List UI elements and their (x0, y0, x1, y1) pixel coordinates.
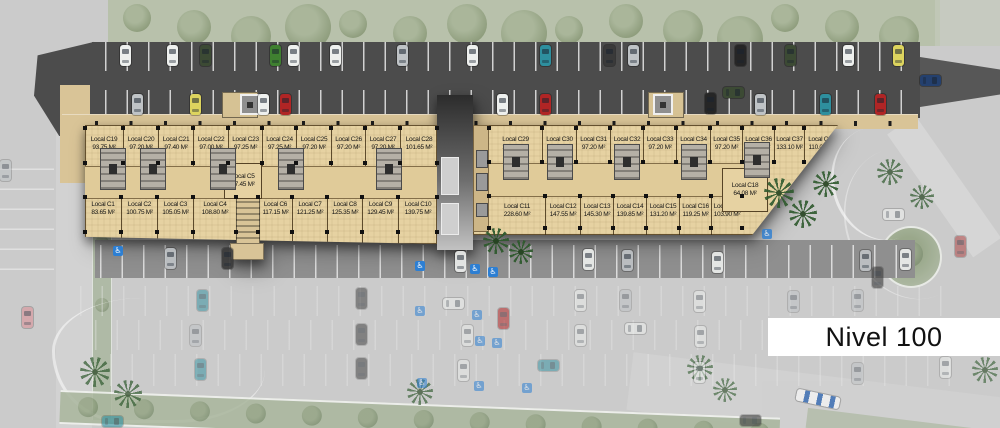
column (325, 230, 329, 234)
column (256, 230, 260, 234)
car-window (167, 252, 174, 257)
column (708, 126, 712, 130)
column (256, 195, 260, 199)
car (165, 248, 176, 269)
local-unit[interactable]: Local C3597.20 M² (710, 125, 742, 163)
column (772, 126, 776, 130)
car-window (464, 340, 471, 343)
car-window (707, 108, 714, 111)
car (498, 308, 509, 329)
car-window (197, 363, 204, 368)
accessible-parking-icon: ♿ (113, 246, 123, 256)
restroom-core (210, 148, 236, 190)
column (398, 126, 402, 130)
column (487, 194, 491, 198)
car-window (577, 305, 584, 308)
column (191, 230, 195, 234)
local-unit[interactable]: Local C3197.20 M² (576, 125, 610, 163)
car-window (854, 294, 861, 299)
car (575, 290, 586, 311)
car (694, 291, 705, 312)
car-window (957, 240, 964, 245)
car-window (282, 109, 289, 112)
column (802, 126, 806, 130)
local-unit[interactable]: Local C12147.55 M² (545, 196, 580, 235)
bush-icon (693, 420, 714, 428)
main-entrance-atrium (437, 95, 473, 250)
bush-icon (357, 407, 378, 428)
unit-name: Local C1 (91, 201, 114, 208)
car-window (757, 98, 764, 103)
car-window (199, 305, 206, 308)
unit-area: 133.10 M² (776, 144, 803, 151)
column (290, 195, 294, 199)
local-unit[interactable]: Local C8125.35 M² (327, 198, 362, 244)
car (785, 45, 796, 66)
unit-name: Local C27 (370, 136, 397, 143)
column (325, 195, 329, 199)
car-window (707, 97, 714, 102)
car-window (282, 98, 289, 103)
unit-area: 228.60 M² (504, 211, 531, 218)
escalator-icon (441, 157, 459, 195)
local-unit[interactable]: Local C15131.20 M² (646, 196, 679, 235)
accessible-parking-icon: ♿ (415, 306, 425, 316)
car-window (24, 311, 31, 316)
car-window (585, 253, 592, 258)
accessible-parking-icon: ♿ (415, 261, 425, 271)
unit-name: Local C16 (682, 203, 709, 210)
column (155, 230, 159, 234)
car (102, 416, 123, 427)
car-window (290, 49, 297, 54)
car (625, 323, 646, 334)
column (363, 126, 367, 130)
car-window (399, 49, 406, 54)
car-window (854, 367, 861, 372)
car-window (550, 362, 555, 369)
car-window (272, 60, 279, 63)
car-window (630, 49, 637, 54)
column (802, 160, 806, 164)
unit-area: 97.20 M² (337, 144, 360, 151)
column (156, 161, 160, 165)
column (260, 126, 264, 130)
unit-area: 105.05 M² (162, 209, 189, 216)
car (167, 45, 178, 66)
unit-name: Local C21 (163, 136, 190, 143)
unit-area: 97.40 M² (164, 144, 187, 151)
column (674, 126, 678, 130)
column (543, 226, 547, 230)
restroom-core (278, 148, 304, 190)
car (705, 93, 716, 114)
column (677, 226, 681, 230)
parking-row-faded (110, 354, 955, 386)
column (396, 230, 400, 234)
escalator-icon (441, 203, 459, 235)
column (611, 226, 615, 230)
column (83, 126, 87, 130)
car-window (542, 60, 549, 63)
unit-area: 101.65 M² (406, 144, 433, 151)
car-window (199, 294, 206, 299)
column (574, 126, 578, 130)
column (396, 195, 400, 199)
car-window (358, 362, 365, 367)
car-window (577, 294, 584, 299)
car-window (499, 109, 506, 112)
restroom-core (547, 144, 573, 180)
car-window (757, 109, 764, 112)
column (155, 195, 159, 199)
column (740, 194, 744, 198)
column (608, 126, 612, 130)
car-window (854, 378, 861, 381)
tree-icon (339, 10, 367, 38)
car-window (500, 312, 507, 317)
car-window (192, 109, 199, 112)
car-window (24, 322, 31, 325)
unit-area: 139.75 M² (405, 209, 432, 216)
car (462, 325, 473, 346)
car (843, 45, 854, 66)
palm-tree-icon (114, 380, 142, 408)
unit-area: 110.05 M² (808, 144, 834, 151)
restroom-core (100, 148, 126, 190)
bush-icon (525, 414, 546, 428)
unit-name: Local C6 (264, 201, 287, 208)
car (940, 357, 951, 378)
bush-icon (246, 403, 267, 424)
unit-name: Local C29 (502, 136, 529, 143)
car (222, 248, 233, 269)
local-unit[interactable]: Local C28101.65 M² (400, 125, 437, 166)
car (820, 94, 831, 115)
column (226, 161, 230, 165)
site-plan-canvas: Local C1993.75 M²Local C2097.20 M²Local … (0, 0, 1000, 428)
car-window (542, 49, 549, 54)
column (83, 230, 87, 234)
car (200, 45, 211, 66)
column (398, 161, 402, 165)
car (22, 307, 33, 328)
car (540, 45, 551, 66)
car (356, 358, 367, 379)
car-window (697, 341, 704, 344)
palm-tree-icon (713, 378, 737, 402)
car (852, 290, 863, 311)
car-window (696, 306, 703, 309)
car (900, 249, 911, 270)
car-window (957, 251, 964, 254)
local-unit[interactable]: Local C3105.05 M² (157, 198, 193, 244)
unit-name: Local C35 (713, 136, 740, 143)
column (191, 161, 195, 165)
local-unit[interactable]: Local C37133.10 M² (774, 125, 804, 163)
accessible-parking-icon: ♿ (488, 267, 498, 277)
column (294, 126, 298, 130)
car-window (624, 265, 631, 268)
column (543, 194, 547, 198)
palm-tree-icon (483, 228, 509, 254)
unit-area: 97.20 M² (715, 144, 738, 151)
local-unit[interactable]: Local C13145.30 M² (580, 196, 613, 235)
car (280, 94, 291, 115)
unit-name: Local C20 (128, 136, 155, 143)
column (641, 126, 645, 130)
car-window (895, 49, 902, 54)
car-window (134, 109, 141, 112)
car-window (499, 98, 506, 103)
car (723, 87, 744, 98)
accessible-parking-icon: ♿ (762, 229, 772, 239)
car (622, 250, 633, 271)
unit-name: Local C13 (584, 203, 611, 210)
skylight-icon (240, 94, 260, 115)
car (467, 45, 478, 66)
unit-name: Local C34 (680, 136, 707, 143)
car-window (752, 417, 757, 424)
car-window (460, 375, 467, 378)
car-window (114, 418, 119, 425)
car (538, 360, 559, 371)
car (120, 45, 131, 66)
car (920, 75, 941, 86)
car-window (577, 329, 584, 334)
car (458, 360, 469, 381)
car-window (737, 49, 744, 54)
car-window (606, 60, 613, 63)
car-window (787, 60, 794, 63)
unit-area: 64.08 M² (733, 190, 756, 197)
car-window (446, 300, 449, 307)
unit-area: 125.35 M² (332, 209, 359, 216)
car-window (696, 366, 703, 371)
column (435, 161, 439, 165)
unit-name: Local C14 (617, 203, 644, 210)
car (694, 362, 705, 383)
tree-icon (771, 4, 799, 32)
palm-tree-icon (80, 357, 110, 387)
local-unit[interactable]: Local C3397.20 M² (643, 125, 676, 163)
column (740, 226, 744, 230)
car (540, 94, 551, 115)
unit-name: Local C38 (808, 136, 835, 143)
column (708, 160, 712, 164)
car (735, 45, 746, 66)
car-window (2, 175, 9, 178)
unit-name: Local C33 (647, 136, 674, 143)
elevator-icon (476, 150, 488, 168)
bush-icon (78, 397, 99, 418)
column (260, 161, 264, 165)
unit-name: Local C2 (128, 201, 151, 208)
elevator-core (473, 125, 489, 232)
car-window (358, 328, 365, 333)
car-window (622, 305, 629, 308)
bush-icon (637, 418, 658, 428)
car-window (202, 49, 209, 54)
column (644, 194, 648, 198)
local-unit[interactable]: Local C10139.75 M² (398, 198, 437, 244)
car-window (169, 60, 176, 63)
bush-icon (581, 416, 602, 428)
car-window (714, 256, 721, 261)
local-unit[interactable]: Local C2697.20 M² (331, 125, 365, 166)
car-window (542, 98, 549, 103)
car-window (542, 109, 549, 112)
car-window (469, 60, 476, 63)
column (611, 194, 615, 198)
car-window (622, 294, 629, 299)
car (195, 359, 206, 380)
car-window (845, 60, 852, 63)
column (191, 195, 195, 199)
column (435, 230, 439, 234)
car-window (923, 77, 926, 84)
column (121, 161, 125, 165)
column (83, 195, 87, 199)
car-window (726, 89, 729, 96)
unit-area: 145.30 M² (584, 211, 611, 218)
unit-area: 129.45 M² (367, 209, 394, 216)
car-window (822, 98, 829, 103)
tree-icon (555, 16, 583, 44)
palm-tree-icon (789, 200, 817, 228)
column (740, 126, 744, 130)
unit-name: Local C10 (405, 201, 432, 208)
car-window (787, 49, 794, 54)
car (197, 290, 208, 311)
unit-name: Local C26 (335, 136, 362, 143)
restroom-core (140, 148, 166, 190)
car (875, 94, 886, 115)
palm-tree-icon (877, 159, 903, 185)
column (119, 230, 123, 234)
car-window (358, 292, 365, 297)
restroom-core (681, 144, 707, 180)
car-window (202, 60, 209, 63)
column (360, 230, 364, 234)
car (288, 45, 299, 66)
car-window (854, 305, 861, 308)
palm-tree-icon (764, 178, 794, 208)
local-unit[interactable]: Local C2100.75 M² (121, 198, 157, 244)
car-window (630, 60, 637, 63)
car-window (877, 98, 884, 103)
unit-name: Local C25 (301, 136, 328, 143)
car-window (272, 49, 279, 54)
column (435, 126, 439, 130)
roadside-green-strip (806, 408, 1000, 428)
unit-area: 121.25 M² (297, 209, 324, 216)
local-unit[interactable]: Local C16119.25 M² (679, 196, 711, 235)
column (709, 226, 713, 230)
car (860, 250, 871, 271)
level-label: Nivel 100 (825, 322, 942, 353)
car (330, 45, 341, 66)
car-window (585, 264, 592, 267)
car-window (457, 266, 464, 269)
car-window (224, 263, 231, 266)
car (695, 326, 706, 347)
car-window (358, 373, 365, 376)
local-unit[interactable]: Local C4108.80 M² (193, 198, 236, 244)
car-window (822, 109, 829, 112)
car-window (743, 417, 746, 424)
unit-area: 97.20 M² (582, 144, 605, 151)
accessible-parking-icon: ♿ (522, 383, 532, 393)
car-window (932, 77, 937, 84)
car (190, 94, 201, 115)
unit-name: Local C22 (198, 136, 225, 143)
elevator-icon (476, 173, 488, 191)
bush-icon (413, 410, 434, 428)
unit-name: Local C24 (266, 136, 293, 143)
car-window (790, 306, 797, 309)
local-unit[interactable]: Local C6117.15 M² (258, 198, 292, 244)
car-window (260, 98, 267, 103)
car-window (192, 98, 199, 103)
column (234, 230, 238, 234)
level-label-box: Nivel 100 (768, 318, 1000, 356)
column (608, 160, 612, 164)
column (83, 161, 87, 165)
palm-tree-icon (509, 240, 533, 264)
local-unit[interactable]: Local C38110.05 M² (804, 125, 838, 163)
unit-name: Local C31 (580, 136, 607, 143)
car (397, 45, 408, 66)
column (540, 126, 544, 130)
car-window (624, 254, 631, 259)
unit-name: Local C7 (298, 201, 321, 208)
column (121, 126, 125, 130)
unit-area: 117.15 M² (262, 209, 288, 216)
car-window (902, 264, 909, 267)
local-unit[interactable]: Local C7121.25 M² (292, 198, 327, 244)
car-window (886, 211, 889, 218)
car-window (122, 49, 129, 54)
unit-name: Local C19 (91, 136, 118, 143)
top-landscaping-band (108, 0, 940, 46)
restroom-core (503, 144, 529, 180)
local-unit[interactable]: Local C9129.45 M² (362, 198, 398, 244)
restroom-core (744, 142, 770, 178)
bush-icon (469, 412, 490, 428)
column (294, 161, 298, 165)
car-window (192, 329, 199, 334)
unit-name: Local C32 (614, 136, 641, 143)
local-unit[interactable]: Local C14139.85 M² (613, 196, 646, 235)
column (709, 194, 713, 198)
column (487, 126, 491, 130)
unit-name: Local C12 (550, 203, 577, 210)
car-window (464, 329, 471, 334)
unit-name: Local C28 (406, 136, 433, 143)
unit-area: 97.20 M² (648, 144, 671, 151)
car-window (460, 364, 467, 369)
car-window (399, 60, 406, 63)
car-window (577, 340, 584, 343)
unit-area: 100.75 M² (126, 209, 153, 216)
accessible-parking-icon: ♿ (417, 378, 427, 388)
car-window (457, 255, 464, 260)
car (755, 94, 766, 115)
car-window (874, 271, 881, 276)
car-window (942, 372, 949, 375)
car-window (541, 362, 544, 369)
